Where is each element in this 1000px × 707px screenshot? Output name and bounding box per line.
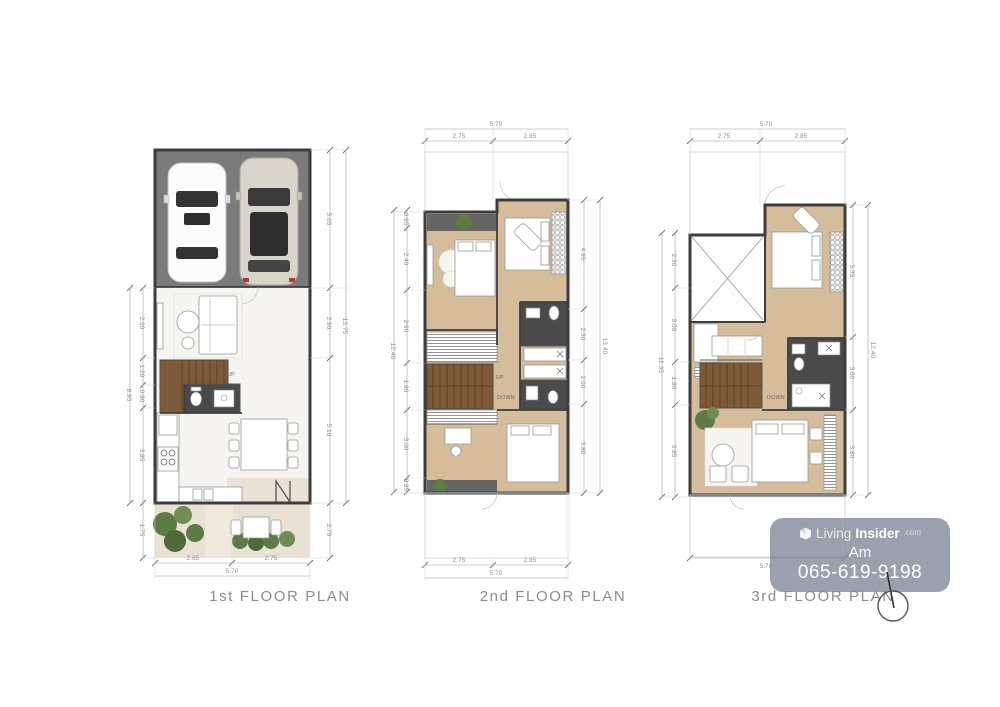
- stairs: [700, 363, 762, 408]
- dim-label: 1.20: [138, 365, 145, 378]
- dim-label: 5.70: [490, 570, 503, 577]
- dim-label: 4.95: [579, 248, 586, 261]
- bathroom: [184, 384, 240, 413]
- plan2-caption: 2nd FLOOR PLAN: [480, 588, 627, 605]
- stair-label: UP: [496, 375, 504, 381]
- stair-label: UP: [227, 372, 235, 378]
- dim-label: 3.95: [670, 445, 677, 458]
- closet: [427, 332, 497, 362]
- dim-label: 0.95: [402, 213, 409, 226]
- floorplan-image: UP 5.65 2.90 5.10 2.70 13.75 2.90 1.20 0…: [0, 0, 1000, 707]
- floor-plan-2: UP DOWN: [389, 121, 608, 580]
- dim-label: 2.75: [718, 133, 731, 140]
- dim-label: 3.00: [670, 319, 677, 332]
- dim-label: 1.75: [138, 524, 145, 537]
- floor-plan-1: UP 5.65 2.90 5.10 2.70 13.75 2.90 1.20 0…: [125, 147, 349, 579]
- dim-label: 3.00: [848, 367, 855, 380]
- master-bedroom: [505, 212, 566, 274]
- dim-label: 3.00: [402, 438, 409, 451]
- side-table: [177, 311, 199, 333]
- brand-prefix: Living: [816, 527, 851, 541]
- dim-label: 2.40: [402, 253, 409, 266]
- dim-label: 8.95: [125, 389, 132, 402]
- dim-label: 5.65: [325, 213, 332, 226]
- dim-label: 2.85: [187, 555, 200, 562]
- dim-label: 5.70: [490, 121, 503, 128]
- dim-label: 1.80: [670, 377, 677, 390]
- dim-label: 2.30: [579, 328, 586, 341]
- bathroom-2: [520, 380, 568, 410]
- pointer-pin-icon: [860, 555, 930, 635]
- dim-label: 1.80: [402, 380, 409, 393]
- dim-label: 13.75: [341, 318, 348, 335]
- dim-label: 12.40: [389, 343, 396, 360]
- stair-label: DOWN: [497, 395, 515, 401]
- dim-label: 2.90: [325, 317, 332, 330]
- tv-console: [157, 303, 163, 349]
- car-silver-icon: [236, 158, 302, 285]
- dim-label: 2.75: [265, 555, 278, 562]
- livinginsider-logo-icon: [799, 527, 812, 540]
- dim-label: 5.35: [848, 265, 855, 278]
- dim-label: 0.90: [138, 390, 145, 403]
- dining-table: [229, 419, 298, 470]
- dim-label: 3.80: [848, 446, 855, 459]
- bathroom: [788, 338, 845, 410]
- plant-icon: [456, 214, 472, 230]
- stair-label: DOWN: [767, 395, 785, 401]
- outdoor-table: [231, 517, 281, 538]
- brand-tld: .com: [904, 526, 921, 540]
- dim-label: 13.40: [601, 338, 608, 355]
- dim-label: 2.75: [453, 133, 466, 140]
- dim-label: 2.85: [795, 133, 808, 140]
- dim-label: 2.85: [524, 133, 537, 140]
- dim-label: 2.30: [670, 254, 677, 267]
- dim-label: 11.35: [657, 357, 664, 373]
- car-white-icon: [164, 163, 230, 282]
- floor-plan-3: DOWN: [657, 121, 876, 570]
- dim-label: 0.85: [402, 479, 409, 492]
- dim-label: 2.85: [524, 557, 537, 564]
- brand-suffix: Insider: [855, 527, 899, 541]
- wardrobe: [552, 212, 566, 274]
- dim-label: 12.40: [869, 342, 876, 359]
- dim-label: 5.70: [760, 121, 773, 128]
- dim-label: 3.80: [579, 442, 586, 455]
- stairs: [427, 364, 493, 409]
- dim-label: 2.90: [138, 317, 145, 330]
- master-bath: [520, 302, 568, 346]
- tv-cabinet: [824, 415, 836, 490]
- dim-label: 2.90: [402, 320, 409, 333]
- dim-label: 2.75: [453, 557, 466, 564]
- closet: [427, 410, 497, 424]
- dim-label: 5.10: [325, 424, 332, 437]
- sofa: [199, 296, 237, 354]
- dim-label: 2.00: [579, 376, 586, 389]
- wardrobe: [830, 232, 843, 292]
- dim-label: 2.70: [325, 524, 332, 537]
- dim-label: 3.85: [138, 449, 145, 462]
- dim-label: 5.70: [226, 568, 239, 575]
- plan1-caption: 1st FLOOR PLAN: [209, 588, 351, 605]
- watermark-brand: LivingInsider.com: [799, 526, 921, 541]
